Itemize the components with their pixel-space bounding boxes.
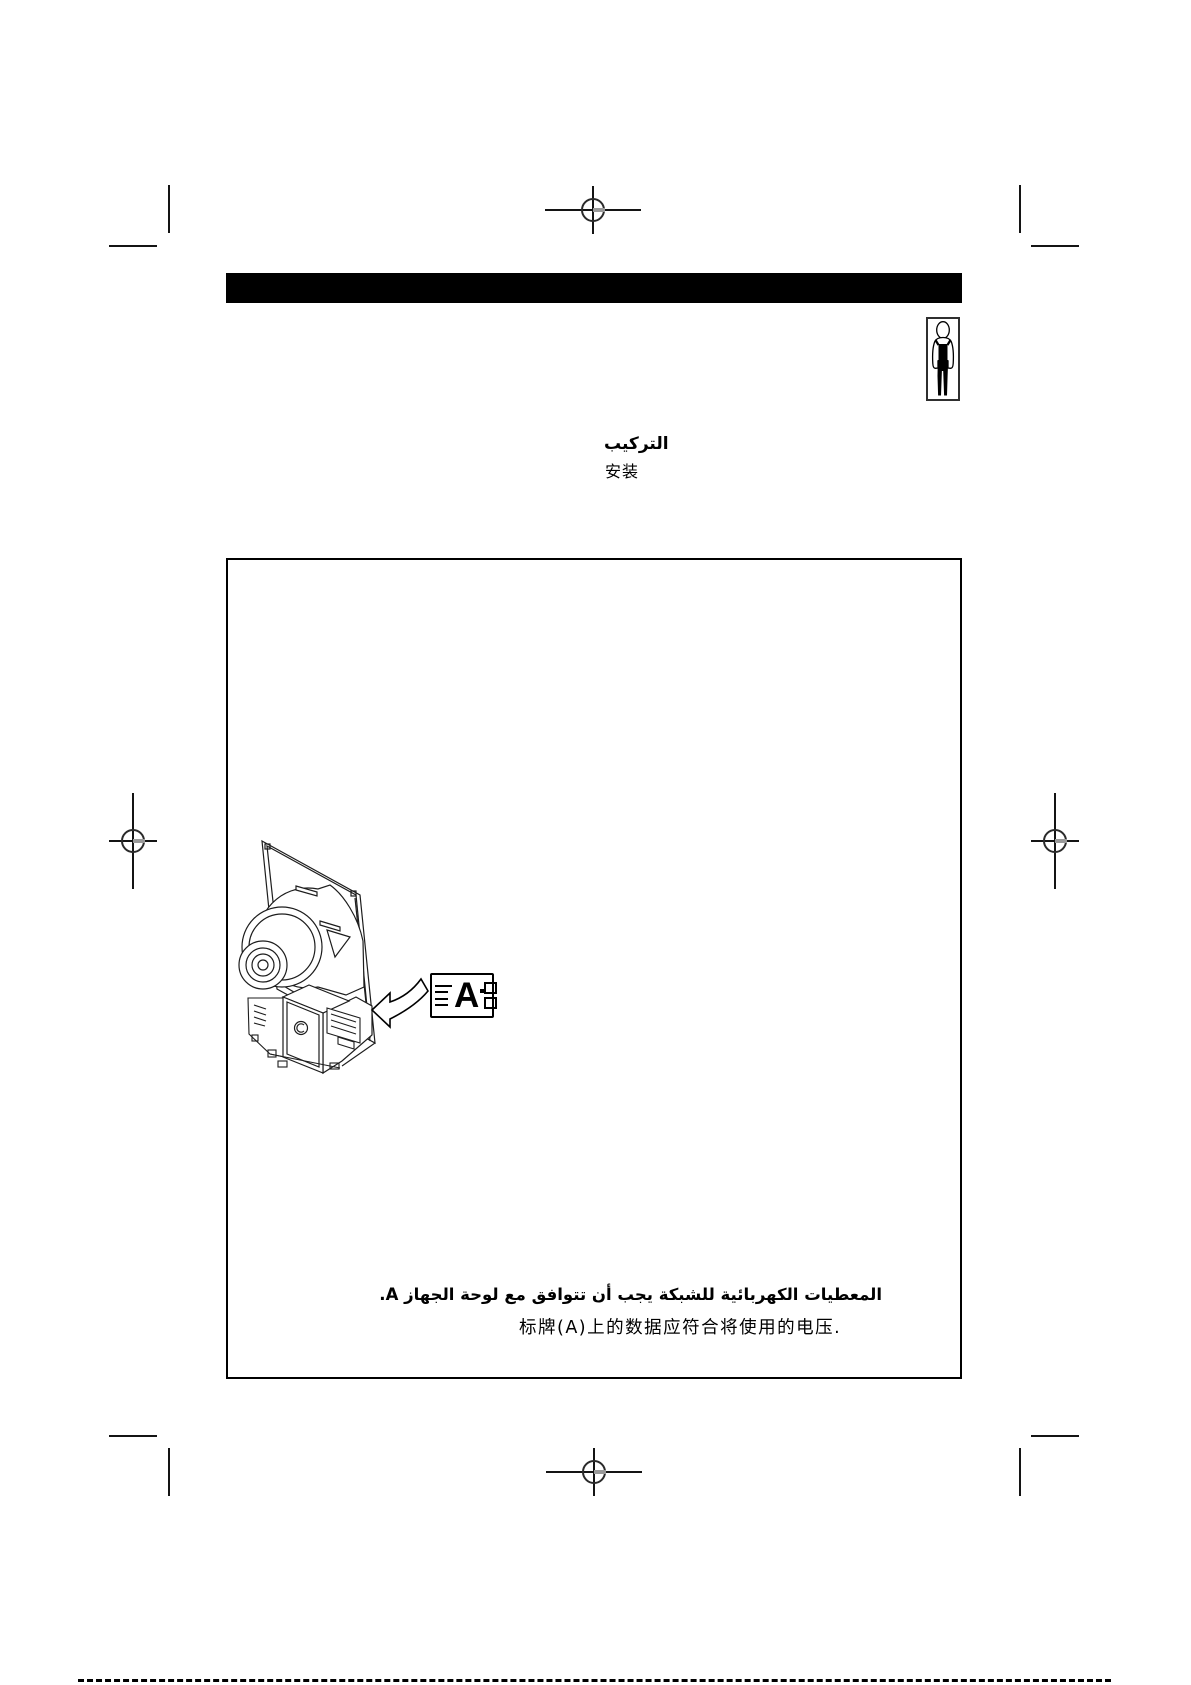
- note-chinese: 标牌(A)上的数据应符合将使用的电压.: [519, 1314, 841, 1339]
- crop-mark-top-left-horizontal: [109, 245, 157, 247]
- section-header-bar: [226, 273, 962, 303]
- registration-mark-top-center: [545, 162, 641, 258]
- crop-mark-bottom-right-horizontal: [1031, 1435, 1079, 1437]
- label-marker-a: A: [454, 978, 479, 1013]
- fan-unit-drawing: [232, 835, 437, 1090]
- installer-person-icon: [928, 319, 958, 399]
- registration-mark-left-middle: [85, 793, 181, 889]
- registration-mark-right-middle: [1007, 793, 1103, 889]
- base-tray: [248, 998, 284, 1057]
- crop-mark-bottom-left-vertical: [168, 1448, 170, 1496]
- crop-mark-bottom-left-horizontal: [109, 1435, 157, 1437]
- pointer-arrow-icon: [372, 979, 428, 1027]
- label-text-lines-icon: [435, 983, 453, 1009]
- bottom-dashed-line: [78, 1679, 1111, 1682]
- section-title-arabic: التركيب: [604, 434, 669, 454]
- fan-housing: [239, 885, 364, 995]
- rating-label-callout: A: [430, 973, 494, 1018]
- crop-mark-top-right-vertical: [1019, 185, 1021, 233]
- label-squares-icon: [484, 981, 497, 1011]
- section-title-chinese: 安装: [605, 458, 639, 482]
- registration-mark-bottom-center: [546, 1424, 642, 1520]
- note-arabic: المعطيات الكهربائية للشبكة يجب أن تتوافق…: [379, 1285, 882, 1304]
- installer-icon-box: [926, 317, 960, 401]
- crop-mark-top-right-horizontal: [1031, 245, 1079, 247]
- manual-page: التركيب 安装: [0, 0, 1191, 1685]
- crop-mark-top-left-vertical: [168, 185, 170, 233]
- crop-mark-bottom-right-vertical: [1019, 1448, 1021, 1496]
